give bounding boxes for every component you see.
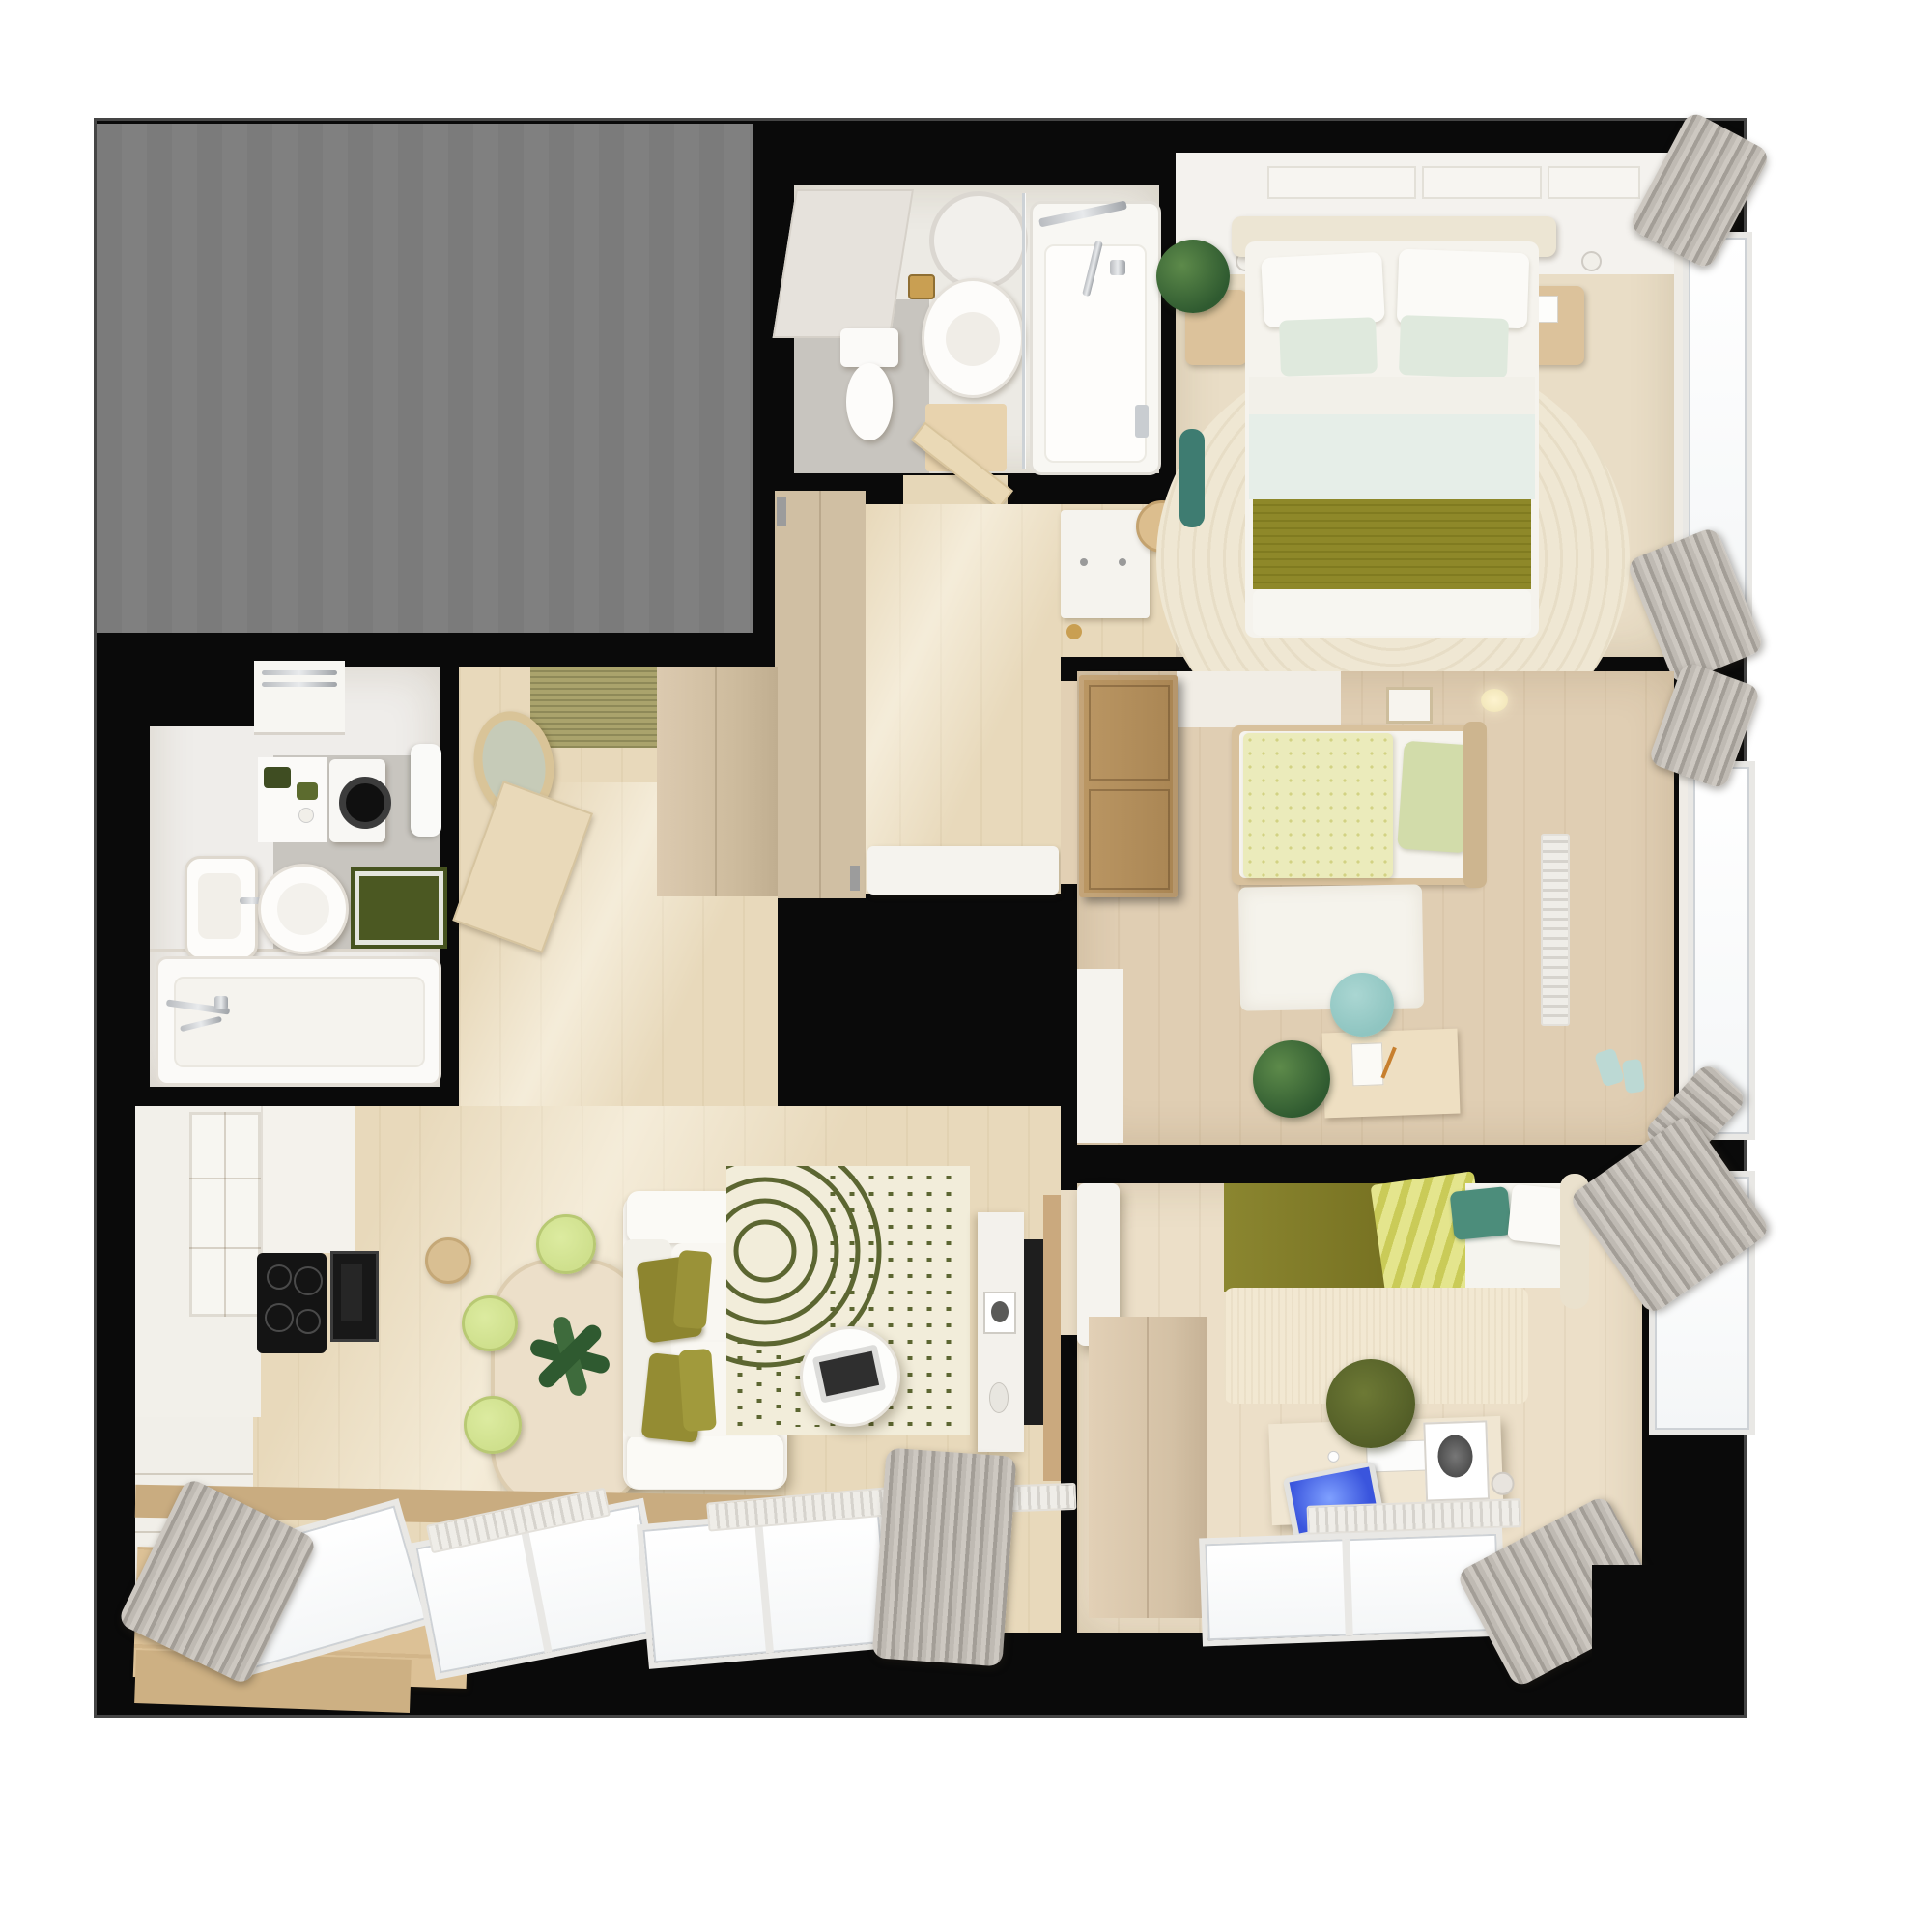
frame-image — [991, 1301, 1009, 1322]
oven — [330, 1251, 379, 1342]
wall-art — [1422, 166, 1542, 199]
drawer-line — [135, 1473, 253, 1475]
sink-basin — [946, 312, 1000, 366]
olive-pillow — [678, 1349, 717, 1432]
sofa-armrest — [627, 1435, 783, 1489]
vase — [989, 1382, 1009, 1413]
wall-lamp — [1581, 251, 1602, 271]
wardrobe-gap — [1147, 1317, 1149, 1618]
picture-frame — [1386, 687, 1433, 724]
dotted-duvet — [1243, 733, 1393, 878]
window-sill — [1679, 761, 1688, 1128]
plant — [1253, 1040, 1330, 1118]
stool — [425, 1237, 471, 1284]
washing-machine — [329, 759, 385, 842]
window-mullion — [521, 1526, 553, 1653]
closet-gap — [819, 491, 821, 898]
sage-pillow — [1397, 741, 1474, 854]
cabinet-shelf — [189, 1247, 261, 1249]
towel-counter — [254, 661, 345, 735]
open-wood-door — [1079, 675, 1178, 897]
vanity-sink — [922, 278, 1024, 398]
door-panel — [1089, 789, 1170, 890]
green-mat — [351, 867, 447, 949]
washer-door — [339, 777, 391, 829]
small-bathroom — [794, 185, 1159, 473]
bath-cabinet — [258, 757, 327, 842]
green-box — [264, 767, 291, 788]
entry-wardrobe — [657, 667, 778, 896]
wardrobe — [1089, 1317, 1207, 1618]
window-mullion — [754, 1520, 774, 1653]
shower-arm — [1038, 201, 1127, 228]
white-dresser — [1077, 969, 1123, 1143]
bathtub — [156, 956, 441, 1086]
mirror-panel — [773, 189, 914, 338]
jar — [298, 808, 314, 823]
cabinet-shelf — [189, 1178, 261, 1179]
duvet-fold — [1249, 414, 1535, 499]
open-door-leaf — [452, 781, 593, 953]
bed-foot — [1253, 589, 1531, 636]
radiator — [1541, 834, 1570, 1026]
pillow — [1261, 252, 1385, 327]
lime-chair — [464, 1396, 522, 1454]
ceiling-lamp — [1481, 689, 1508, 712]
lime-chair — [536, 1214, 596, 1274]
olive-pillow — [673, 1250, 713, 1330]
slipper — [1594, 1047, 1625, 1087]
round-sink — [258, 864, 349, 954]
desk — [1322, 1029, 1461, 1119]
wall-art — [1267, 166, 1416, 199]
burner — [267, 1264, 292, 1290]
tv-wall-panel — [1043, 1195, 1061, 1481]
dresser-knob — [1119, 558, 1126, 566]
slipper — [1622, 1059, 1646, 1094]
wall-step — [1592, 1565, 1744, 1715]
laptop-keys — [819, 1351, 879, 1397]
gold-tray — [908, 274, 935, 299]
toilet-tank — [840, 328, 898, 367]
kids-bedroom — [1077, 671, 1674, 1145]
shower-head — [1110, 260, 1125, 275]
toilet-bowl — [846, 363, 893, 440]
gray-masked-area — [97, 124, 753, 633]
burner — [294, 1266, 323, 1295]
main-bathroom — [150, 667, 440, 1087]
curtain — [872, 1448, 1017, 1667]
toilet — [411, 744, 441, 837]
teal-pillow — [1450, 1186, 1513, 1240]
wardrobe-gap — [715, 667, 717, 896]
coffee-table — [800, 1326, 900, 1427]
sage-pillow — [1399, 315, 1509, 379]
tv-console — [978, 1212, 1024, 1452]
square-sink — [185, 856, 258, 960]
white-rug — [1238, 884, 1424, 1010]
olive-blanket — [1224, 1183, 1396, 1292]
teal-chair — [1330, 973, 1394, 1037]
closet-track-top — [777, 497, 786, 526]
towel-rail — [262, 682, 337, 687]
bottom-window — [1199, 1528, 1506, 1647]
shower-screen — [1022, 193, 1025, 469]
oven-glass — [341, 1264, 362, 1321]
master-bedroom — [1176, 153, 1674, 657]
sink-basin — [198, 873, 241, 939]
burner — [296, 1309, 321, 1334]
office-chair — [1326, 1359, 1415, 1448]
sink-basin — [277, 883, 329, 935]
drain-control — [214, 996, 228, 1009]
poster — [1423, 1420, 1490, 1501]
bathtub — [1030, 201, 1161, 475]
picture-frame — [983, 1292, 1016, 1334]
cabinet-divider — [224, 1112, 226, 1317]
glass-cabinet — [189, 1112, 261, 1317]
tall-cabinet — [261, 1106, 355, 1253]
laptop — [812, 1344, 886, 1403]
bed-headboard — [1463, 722, 1487, 888]
cooktop — [257, 1253, 327, 1353]
hall-closet — [775, 491, 866, 898]
hall-bench — [867, 846, 1059, 895]
sage-pillow — [1279, 317, 1378, 376]
lime-chair — [462, 1295, 518, 1351]
round-mirror — [929, 191, 1028, 290]
teal-bench — [1179, 429, 1205, 527]
bathtub-inner — [1044, 244, 1147, 463]
floorplan-canvas — [0, 0, 1932, 1932]
poster-image — [1437, 1435, 1474, 1478]
wall-notch — [150, 667, 254, 726]
cup — [1491, 1471, 1515, 1495]
wall-art — [1548, 166, 1640, 199]
door-panel — [1089, 685, 1170, 781]
dining-table — [491, 1259, 645, 1510]
duvet-top — [1249, 377, 1535, 415]
green-soap — [297, 782, 318, 800]
olive-blanket — [1253, 499, 1531, 589]
burner — [265, 1303, 294, 1332]
doormat — [530, 667, 677, 748]
gold-decor — [1066, 624, 1082, 639]
closet-track-bottom — [850, 866, 860, 891]
kitchen-living-room — [135, 1106, 1061, 1633]
soap-bottle — [1135, 405, 1149, 438]
mouse — [1327, 1451, 1339, 1463]
plant — [1156, 240, 1230, 313]
window — [637, 1503, 896, 1669]
window-mullion — [1342, 1539, 1352, 1635]
tv — [1024, 1239, 1043, 1425]
dresser-knob — [1080, 558, 1088, 566]
towel-rail — [262, 670, 337, 675]
entry-floor — [459, 667, 778, 1106]
wall-strip — [1177, 671, 1341, 727]
double-bed — [1245, 241, 1539, 638]
notebook — [1351, 1042, 1384, 1086]
pencil — [1380, 1047, 1396, 1079]
